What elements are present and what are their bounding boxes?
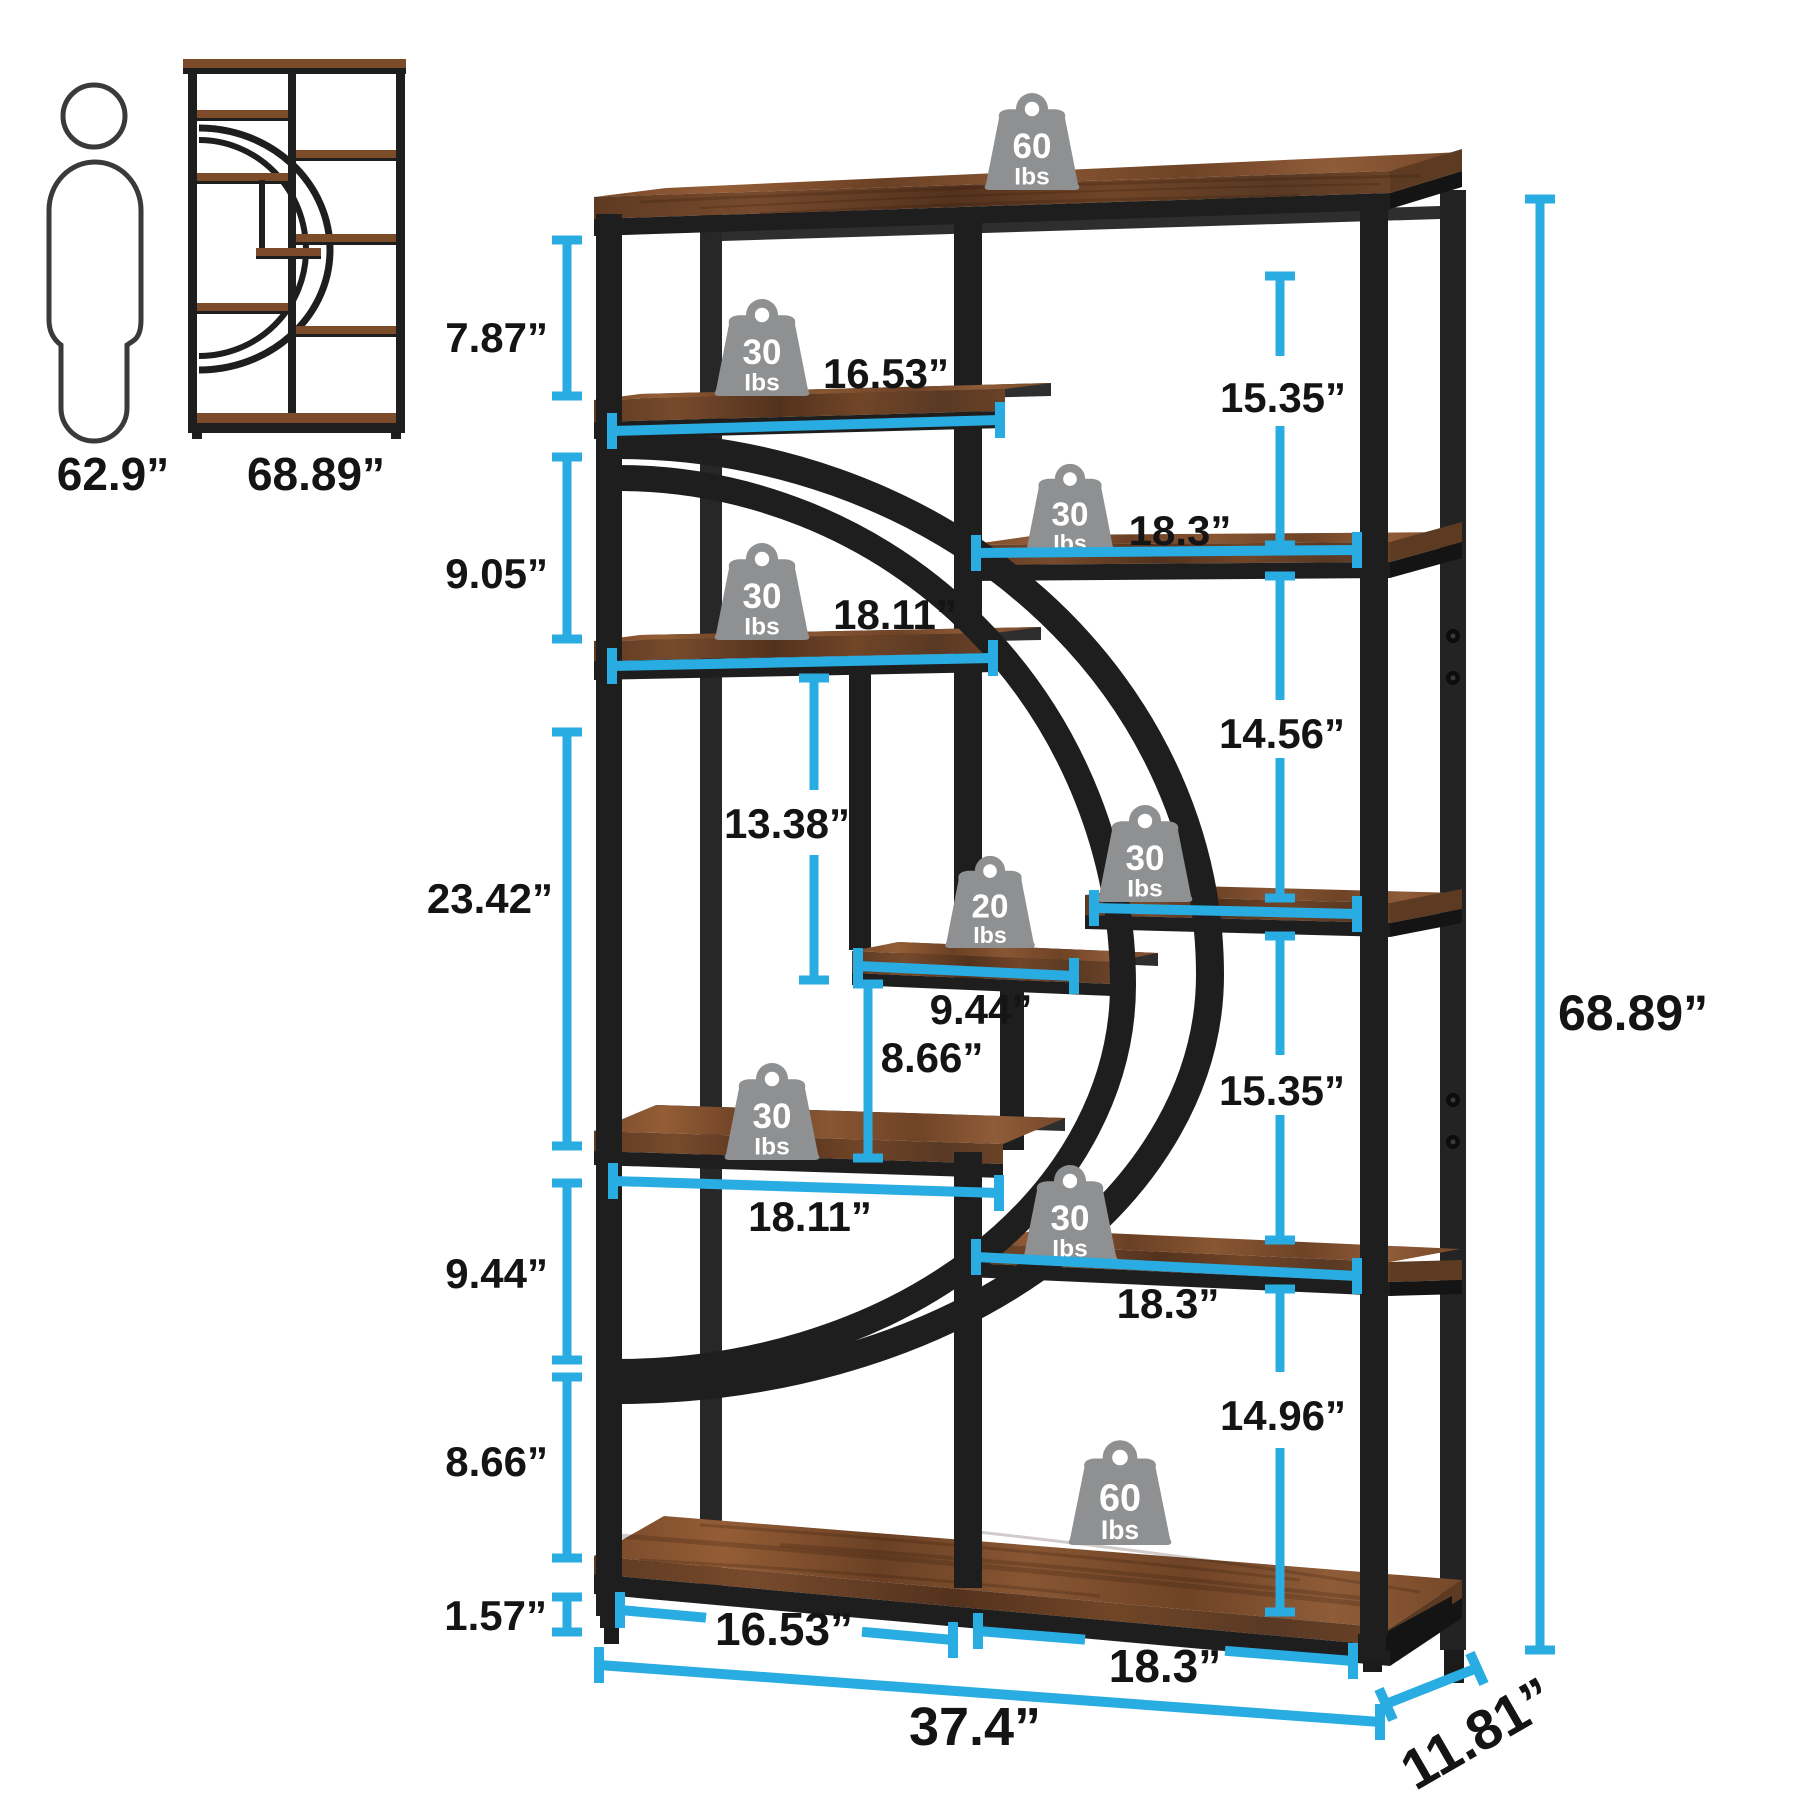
svg-text:13.38”: 13.38”: [724, 800, 850, 847]
svg-text:30: 30: [743, 577, 782, 616]
svg-text:1.57”: 1.57”: [444, 1592, 547, 1639]
svg-text:15.35”: 15.35”: [1220, 374, 1346, 421]
svg-text:30: 30: [1051, 1199, 1090, 1238]
svg-text:Ibs: Ibs: [754, 1134, 789, 1161]
svg-text:14.96”: 14.96”: [1220, 1392, 1346, 1439]
svg-text:60: 60: [1099, 1477, 1141, 1519]
svg-text:18.3”: 18.3”: [1129, 507, 1232, 554]
svg-text:68.89”: 68.89”: [247, 448, 385, 500]
svg-text:Ibs: Ibs: [1014, 164, 1049, 191]
svg-text:9.44”: 9.44”: [930, 986, 1033, 1033]
svg-text:20: 20: [972, 889, 1009, 926]
svg-text:30: 30: [1052, 497, 1089, 534]
svg-text:18.11”: 18.11”: [833, 591, 957, 638]
svg-text:62.9”: 62.9”: [57, 448, 170, 500]
svg-text:60: 60: [1013, 127, 1052, 166]
svg-text:Ibs: Ibs: [744, 370, 779, 397]
svg-text:8.66”: 8.66”: [881, 1034, 984, 1081]
svg-text:18.3”: 18.3”: [1109, 1640, 1222, 1692]
svg-text:7.87”: 7.87”: [445, 314, 548, 361]
svg-text:30: 30: [1126, 839, 1165, 878]
svg-text:18.11”: 18.11”: [748, 1193, 872, 1240]
svg-text:15.35”: 15.35”: [1219, 1067, 1345, 1114]
svg-text:16.53”: 16.53”: [823, 350, 949, 397]
svg-text:9.05”: 9.05”: [445, 550, 548, 597]
svg-text:23.42”: 23.42”: [427, 875, 553, 922]
svg-text:37.4”: 37.4”: [909, 1697, 1041, 1757]
svg-text:30: 30: [753, 1097, 792, 1136]
svg-text:Ibs: Ibs: [1101, 1515, 1139, 1545]
svg-text:16.53”: 16.53”: [715, 1603, 853, 1655]
svg-text:30: 30: [743, 333, 782, 372]
svg-text:14.56”: 14.56”: [1219, 710, 1345, 757]
svg-text:Ibs: Ibs: [744, 614, 779, 641]
svg-text:18.3”: 18.3”: [1117, 1280, 1220, 1327]
svg-text:Ibs: Ibs: [973, 922, 1007, 948]
svg-text:8.66”: 8.66”: [445, 1438, 548, 1485]
svg-text:Ibs: Ibs: [1127, 876, 1162, 903]
svg-text:9.44”: 9.44”: [445, 1250, 548, 1297]
svg-text:68.89”: 68.89”: [1558, 985, 1708, 1041]
